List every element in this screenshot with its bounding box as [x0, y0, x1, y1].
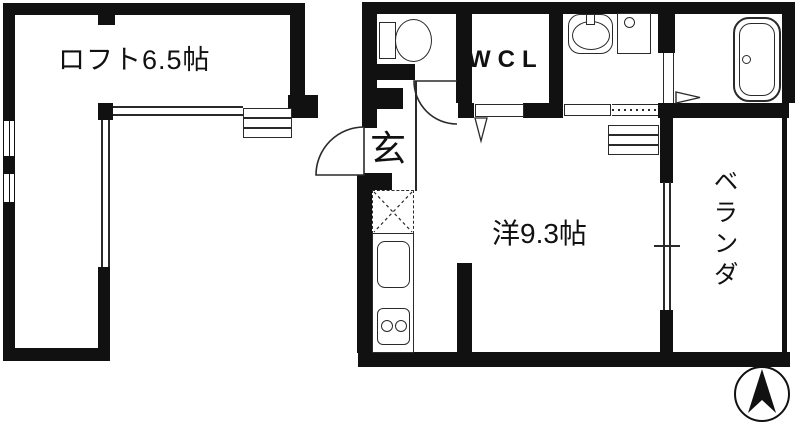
wall-segment	[3, 3, 15, 120]
veranda-railing	[782, 118, 787, 352]
washbasin-bowl	[572, 21, 610, 50]
room-label-loft: ロフト6.5帖	[58, 47, 211, 74]
wcl-door-opening	[475, 104, 524, 117]
railing-line	[113, 106, 243, 108]
wall-segment	[357, 175, 372, 353]
wall-segment	[98, 267, 110, 361]
ladder-rung	[244, 117, 291, 119]
wall-segment	[782, 2, 795, 103]
faucet-icon	[586, 14, 595, 25]
wall-segment	[457, 263, 472, 353]
washing-machine-knob	[624, 17, 635, 28]
shelf-icon	[608, 125, 659, 155]
sliding-door-center-mark	[654, 245, 680, 247]
window-pane-line	[9, 174, 10, 202]
window-pane-line	[9, 121, 10, 156]
room-label-veranda: ベランダ	[711, 168, 736, 292]
railing-line	[101, 120, 103, 267]
room-label-wcl: WCL	[468, 48, 544, 72]
room-label-genkan: 玄	[370, 131, 406, 167]
wall-segment	[362, 2, 795, 14]
wall-segment	[98, 103, 113, 120]
washroom-sliding-door	[564, 104, 611, 116]
bathtub-drain	[742, 55, 751, 64]
wall-segment	[549, 2, 563, 118]
wall-segment	[3, 3, 305, 15]
wall-segment	[288, 95, 318, 118]
wall-segment	[3, 348, 110, 361]
wcl-door-leaf	[475, 118, 487, 141]
wall-segment	[3, 203, 15, 361]
window	[3, 120, 15, 157]
wall-segment	[375, 88, 403, 109]
railing-line	[108, 120, 110, 267]
floor-plan: ロフト6.5帖 WCL 玄 洋9.3帖 ベランダ	[0, 0, 800, 423]
toilet-icon	[379, 22, 396, 59]
wall-segment	[98, 15, 115, 25]
wall-segment	[290, 3, 305, 98]
ladder-rung	[244, 127, 291, 129]
stove-burner	[381, 320, 393, 332]
wall-segment	[375, 64, 415, 80]
wall-segment	[458, 103, 474, 118]
room-label-main: 洋9.3帖	[492, 220, 587, 248]
railing-line	[113, 114, 243, 116]
loft-ladder-icon	[243, 108, 292, 138]
wall-segment	[658, 103, 789, 118]
entrance-door-swing	[316, 127, 364, 175]
shelf-slat	[609, 144, 658, 146]
stove-burner	[395, 320, 407, 332]
wall-segment	[660, 103, 673, 183]
wall-segment	[3, 157, 15, 173]
toilet-door-swing	[414, 81, 457, 124]
refrigerator-space-icon	[372, 190, 414, 234]
shelf-slat	[609, 134, 658, 136]
wall-segment	[660, 310, 673, 353]
kitchen-sink-icon	[377, 241, 410, 288]
genkan-step-line	[415, 81, 417, 191]
sliding-door-track	[612, 104, 658, 116]
toilet-bowl	[395, 19, 432, 62]
bath-door-frame	[663, 53, 674, 103]
wall-segment	[358, 352, 790, 367]
window	[3, 173, 15, 203]
north-arrow-icon	[734, 366, 790, 422]
bath-door-leaf	[676, 92, 700, 103]
wall-segment	[658, 2, 675, 53]
